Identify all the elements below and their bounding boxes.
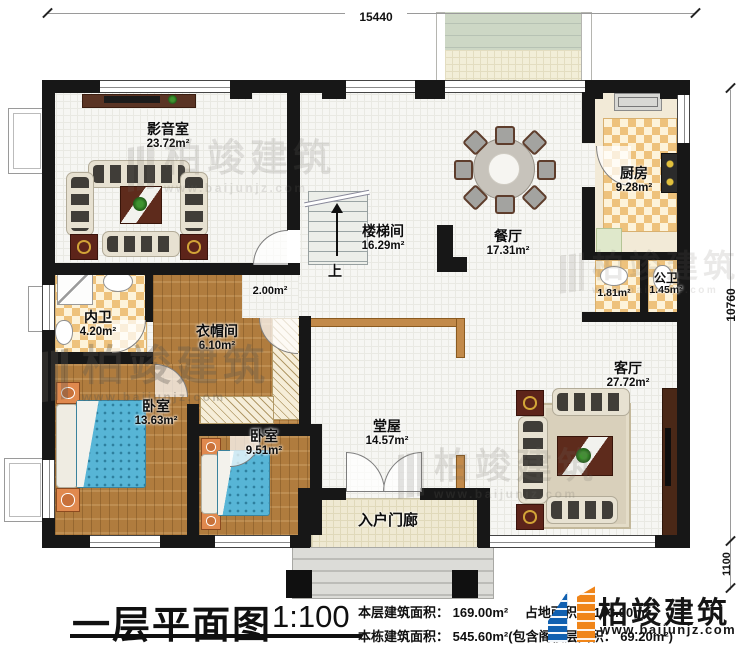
wall [287, 92, 300, 232]
wash-sink [600, 266, 628, 286]
brand-logo: 柏竣建筑 www.baijunjz.com [548, 584, 748, 648]
wall [310, 424, 322, 535]
window [100, 80, 230, 93]
wall [677, 143, 690, 548]
wood-screen [310, 318, 465, 327]
wall [145, 267, 153, 322]
wall [582, 92, 595, 143]
dimension-right-lower: 1100 [721, 543, 733, 585]
tv-screen [665, 428, 671, 486]
room-label-media-room: 影音室 23.72m² [147, 122, 190, 151]
room-label-public-bath: 公卫 1.45m² [649, 272, 682, 297]
toilet [55, 320, 73, 345]
room-label-stair-hall: 楼梯间 16.29m² [362, 224, 405, 253]
wall [477, 488, 490, 547]
room-label-dining: 餐厅 17.31m² [487, 229, 530, 258]
wall [42, 352, 153, 364]
dining-chair [495, 195, 515, 214]
window [90, 535, 160, 548]
plant [168, 95, 177, 104]
wall [42, 80, 55, 285]
dimension-top: 15440 [345, 10, 407, 24]
porch-column [286, 570, 312, 598]
dining-chair [454, 160, 473, 180]
plant [133, 197, 147, 211]
nightstand [56, 488, 80, 512]
dining-chair [537, 160, 556, 180]
room-label-wash-area: 1.81m² [597, 288, 630, 300]
sofa [102, 231, 180, 257]
porch-column [452, 570, 478, 598]
wood-screen [456, 318, 465, 358]
plan-scale: 1:100 [272, 599, 350, 635]
wall [582, 312, 690, 322]
room-label-living-room: 客厅 27.72m² [607, 361, 650, 390]
wall [655, 535, 690, 548]
room-label-bedroom2: 卧室 9.51m² [246, 429, 282, 458]
wood-screen [456, 455, 465, 491]
wall [582, 252, 690, 260]
window [677, 95, 690, 143]
kitchen-counter [596, 228, 622, 254]
wall [299, 316, 311, 424]
plan-title: 一层平面图 [72, 594, 272, 649]
sofa [66, 172, 94, 236]
tv-screen [104, 96, 160, 103]
bed-sheet [77, 401, 103, 487]
dining-table-center [488, 153, 520, 185]
floor-plan-canvas: 影音室 23.72m² 楼梯间 16.29m² 餐厅 17.31m² 厨房 9.… [0, 0, 750, 653]
window [215, 535, 290, 548]
wall [677, 80, 690, 95]
sofa [552, 388, 630, 416]
wall [437, 225, 453, 272]
logo-orange-shape [577, 584, 595, 642]
door-gap [287, 230, 300, 263]
logo-blue-shape [548, 592, 580, 642]
wall [415, 80, 445, 99]
wall [187, 404, 199, 535]
stair-arrow-head [331, 203, 343, 213]
wall [322, 80, 346, 99]
room-label-entry-porch: 入户门廊 [358, 513, 418, 530]
brand-logo-icon [548, 584, 596, 642]
side-table [70, 234, 98, 260]
window [42, 460, 55, 518]
sliding-door [445, 80, 585, 93]
window [42, 285, 55, 330]
wardrobe [200, 396, 274, 424]
wall [298, 488, 311, 547]
dining-chair [495, 126, 515, 145]
room-label-bedroom1: 卧室 13.63m² [135, 399, 178, 428]
dimension-right-main: 10760 [724, 277, 738, 333]
wall [42, 535, 90, 548]
room-label-inner-bath: 内卫 4.20m² [80, 310, 116, 339]
bed-headboard [56, 404, 78, 488]
room-label-main-hall: 堂屋 14.57m² [366, 419, 409, 448]
wall [582, 187, 595, 252]
sofa [518, 416, 548, 504]
wall [230, 80, 252, 99]
side-table [516, 504, 544, 530]
room-label-cloakroom: 衣帽间 6.10m² [196, 324, 238, 353]
stair-arrow-shaft [336, 212, 338, 256]
corridor-area-label: 2.00m² [253, 285, 288, 297]
terrace-tile [445, 50, 581, 80]
bay-window [8, 108, 46, 174]
kitchen-sink [614, 93, 662, 111]
wall [160, 535, 215, 548]
window [490, 535, 655, 548]
sofa [180, 172, 208, 236]
stairs-up-label: 上 [328, 264, 342, 280]
plant [576, 448, 591, 463]
brand-url: www.baijunjz.com [600, 622, 736, 637]
side-table [516, 390, 544, 416]
wall [453, 257, 467, 272]
sofa [88, 160, 190, 188]
terrace-frame-right [581, 12, 592, 82]
terrace-deck [445, 12, 581, 50]
wall [42, 330, 55, 460]
room-label-kitchen: 厨房 9.28m² [616, 166, 652, 195]
bay-window [4, 458, 46, 522]
wall [640, 260, 648, 312]
side-table [180, 234, 208, 260]
sofa [546, 496, 618, 524]
